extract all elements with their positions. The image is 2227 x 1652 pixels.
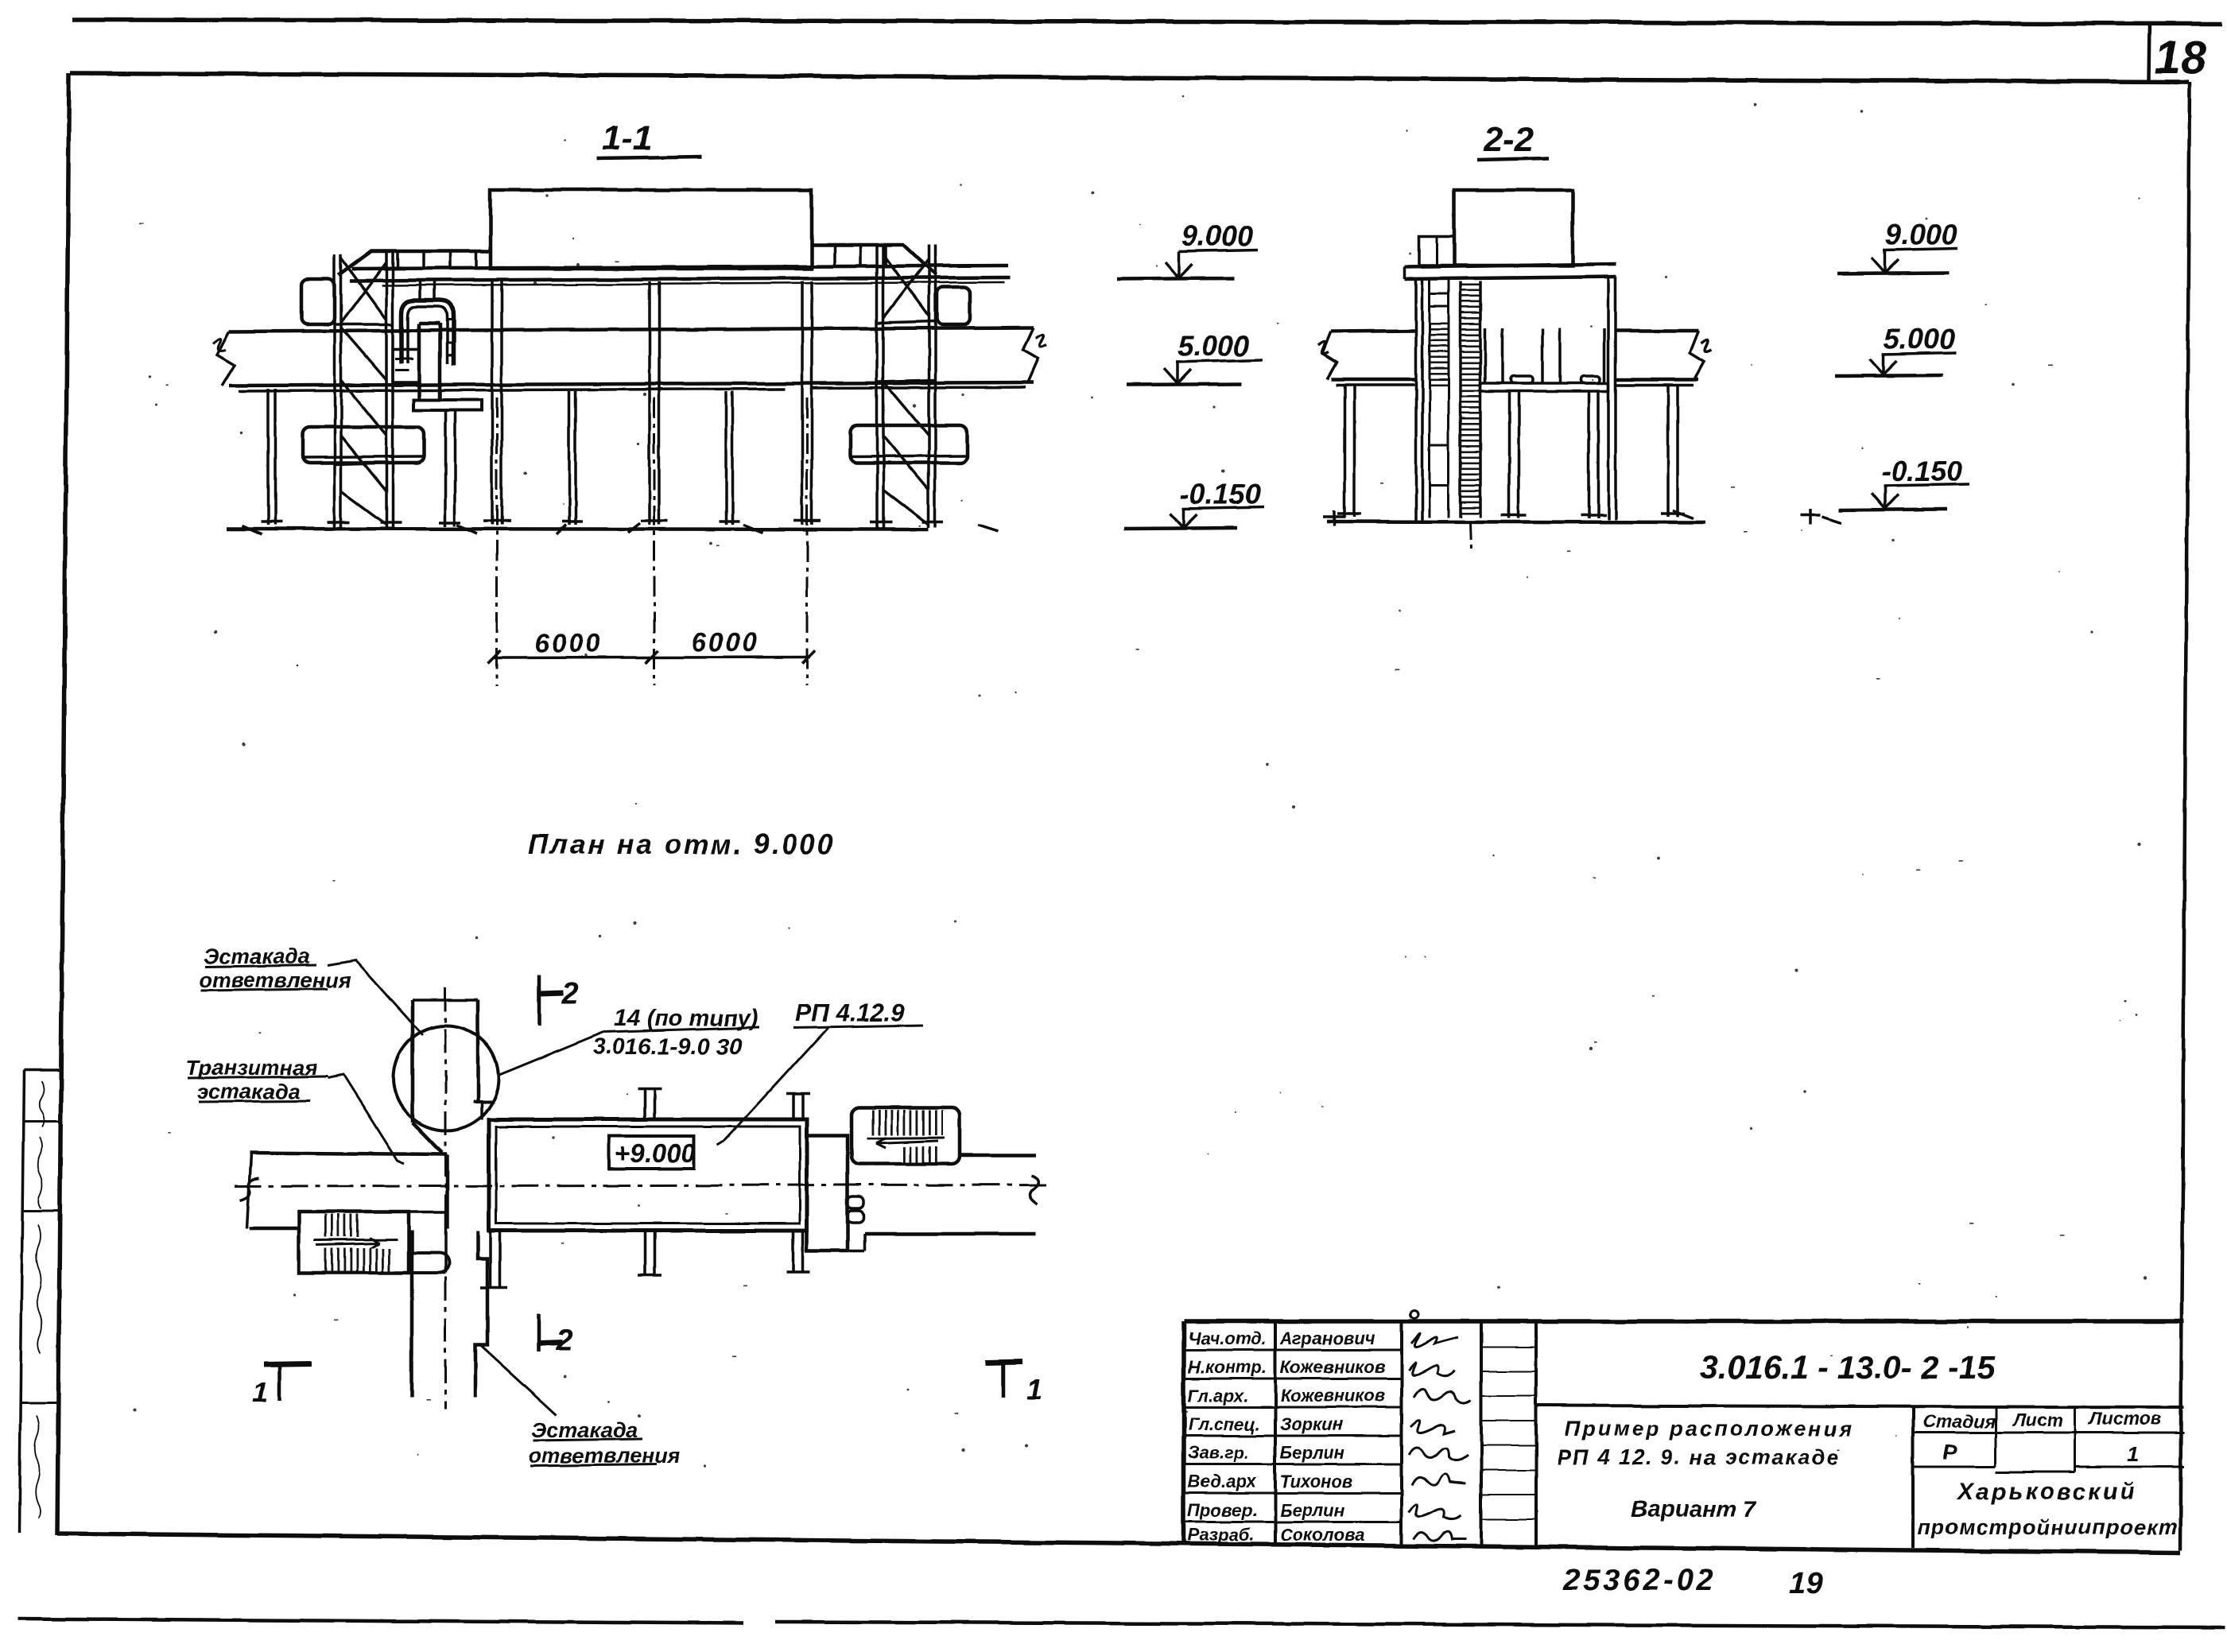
svg-text:Листов: Листов <box>2088 1408 2162 1429</box>
svg-text:Провер.: Провер. <box>1188 1500 1257 1520</box>
svg-text:18: 18 <box>2155 32 2206 83</box>
svg-text:Чач.отд.: Чач.отд. <box>1188 1328 1266 1348</box>
svg-text:6000: 6000 <box>534 628 602 657</box>
svg-text:Берлин: Берлин <box>1280 1443 1344 1463</box>
svg-text:промстройниипроект: промстройниипроект <box>1918 1515 2178 1539</box>
svg-text:1: 1 <box>2128 1442 2140 1466</box>
svg-text:Стадия: Стадия <box>1922 1411 1996 1432</box>
svg-text:Вед.арх: Вед.арх <box>1188 1472 1256 1491</box>
svg-text:Берлин: Берлин <box>1280 1500 1344 1520</box>
svg-text:Лист: Лист <box>2012 1410 2063 1430</box>
svg-text:Кожевников: Кожевников <box>1280 1386 1385 1406</box>
svg-text:РП 4 12. 9. на эстакаде: РП 4 12. 9. на эстакаде <box>1557 1445 1841 1469</box>
svg-text:Пример расположения: Пример расположения <box>1565 1417 1854 1441</box>
svg-text:Вариант 7: Вариант 7 <box>1631 1497 1757 1522</box>
svg-text:6000: 6000 <box>692 627 759 657</box>
svg-text:9.000: 9.000 <box>1181 219 1253 252</box>
svg-text:Р: Р <box>1943 1441 1958 1464</box>
svg-text:1: 1 <box>1026 1373 1042 1406</box>
svg-text:эстакада: эстакада <box>197 1080 300 1103</box>
svg-text:Кожевников: Кожевников <box>1280 1357 1385 1377</box>
svg-text:План на отм. 9.000: План на отм. 9.000 <box>528 829 836 860</box>
svg-text:5.000: 5.000 <box>1884 323 1955 355</box>
svg-text:2-2: 2-2 <box>1483 120 1534 159</box>
svg-text:19: 19 <box>1789 1567 1822 1600</box>
svg-text:-0.150: -0.150 <box>1180 478 1261 510</box>
svg-text:Гл.спец.: Гл.спец. <box>1188 1414 1260 1434</box>
svg-text:3.016.1 - 13.0- 2 -15: 3.016.1 - 13.0- 2 -15 <box>1700 1349 1996 1386</box>
svg-text:-0.150: -0.150 <box>1881 455 1962 487</box>
svg-text:9.000: 9.000 <box>1885 218 1957 250</box>
svg-text:Зоркин: Зоркин <box>1280 1414 1343 1434</box>
svg-text:Агранович: Агранович <box>1279 1328 1375 1348</box>
svg-text:Харьковский: Харьковский <box>1956 1479 2136 1505</box>
svg-text:+9.000: +9.000 <box>615 1138 696 1168</box>
svg-text:5.000: 5.000 <box>1178 329 1249 362</box>
svg-text:РП 4.12.9: РП 4.12.9 <box>795 999 906 1026</box>
svg-text:1: 1 <box>253 1376 269 1409</box>
svg-text:Соколова: Соколова <box>1280 1525 1364 1545</box>
svg-text:25362-02: 25362-02 <box>1562 1564 1717 1597</box>
svg-text:Разраб.: Разраб. <box>1188 1525 1255 1545</box>
svg-text:3.016.1-9.0 30: 3.016.1-9.0 30 <box>593 1034 742 1060</box>
svg-text:2: 2 <box>556 1324 573 1357</box>
svg-text:Гл.арх.: Гл.арх. <box>1188 1386 1248 1406</box>
svg-text:1-1: 1-1 <box>602 118 653 157</box>
svg-text:Тихонов: Тихонов <box>1280 1472 1352 1491</box>
svg-text:2: 2 <box>561 977 578 1010</box>
svg-text:Зав.гр.: Зав.гр. <box>1188 1443 1249 1463</box>
svg-text:Н.контр.: Н.контр. <box>1188 1357 1267 1377</box>
